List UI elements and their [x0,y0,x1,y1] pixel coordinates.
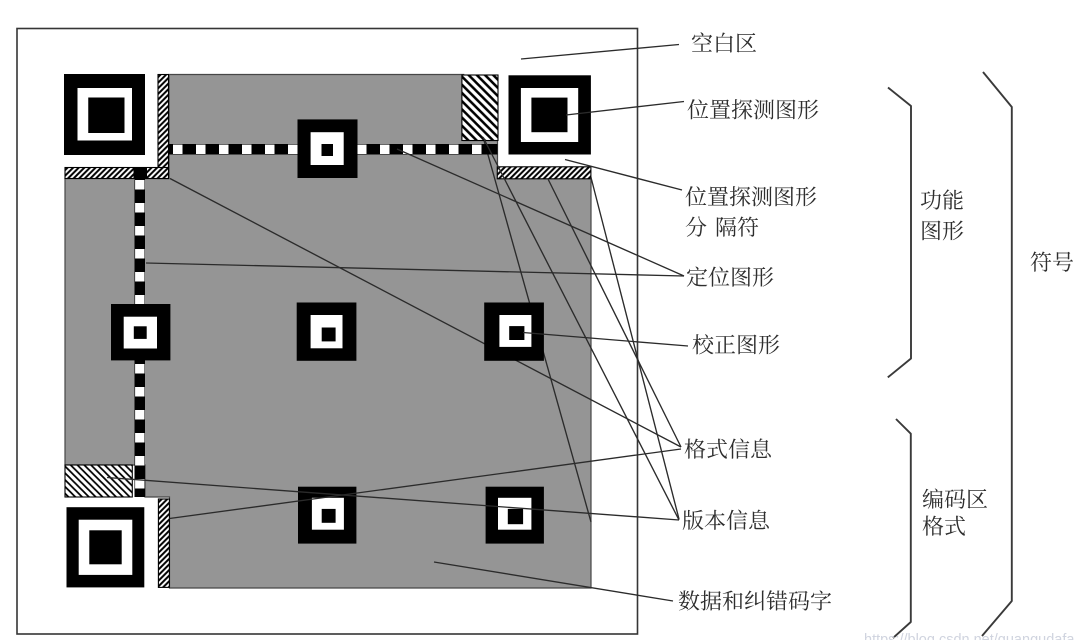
svg-text:https://blog.csdn.net/guanguda: https://blog.csdn.net/guangudafa [864,632,1075,640]
